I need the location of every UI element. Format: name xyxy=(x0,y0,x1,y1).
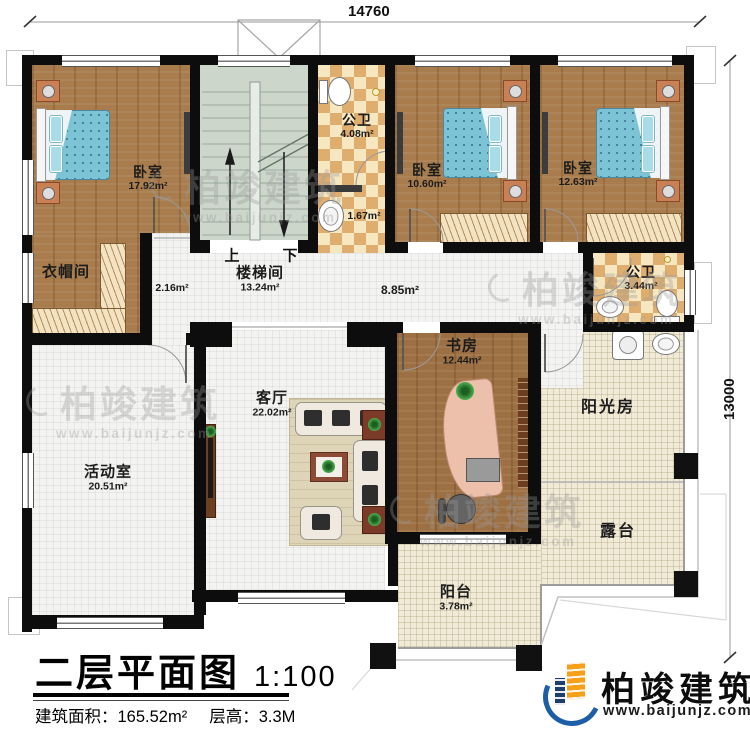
stair-down-label: 下 xyxy=(282,245,297,266)
window xyxy=(57,617,163,629)
window xyxy=(62,55,160,67)
room-area: 4.08m² xyxy=(340,128,373,140)
wardrobe xyxy=(100,243,126,309)
room-label-balcony: 阳台 3.78m² xyxy=(439,583,472,612)
bed-headboard xyxy=(36,108,46,182)
room-name: 活动室 xyxy=(84,463,132,480)
stair-up-label: 上 xyxy=(224,245,239,266)
company-website: www.baijunjz.com xyxy=(603,703,750,719)
room-name: 阳光房 xyxy=(581,399,635,417)
plant-icon xyxy=(205,426,216,437)
wardrobe xyxy=(440,213,528,243)
toilet-tank xyxy=(319,80,328,104)
plant-icon xyxy=(456,382,474,400)
wardrobe xyxy=(32,308,126,335)
logo-building-icon xyxy=(555,678,565,705)
exterior-platform xyxy=(694,262,712,324)
room-area: 2.16m² xyxy=(155,282,188,294)
logo-building-icon xyxy=(567,662,585,699)
title-underline xyxy=(33,693,289,701)
bed-pillow xyxy=(642,146,654,172)
room-area: 22.02m² xyxy=(252,407,291,419)
nightstand xyxy=(503,80,527,102)
dimension-right-label: 13000 xyxy=(721,378,738,420)
wall-segment xyxy=(190,63,200,240)
wall-segment xyxy=(190,240,210,253)
office-chair xyxy=(446,494,476,524)
nightstand xyxy=(656,180,680,202)
bed-headboard xyxy=(660,106,670,180)
room-name: 露台 xyxy=(600,523,636,541)
room-label-bath-annex: 1.67m² xyxy=(347,210,380,222)
wall-segment xyxy=(583,322,694,332)
room-name: 卧室 xyxy=(407,162,446,178)
room-name: 公卫 xyxy=(340,112,373,128)
wall-segment xyxy=(385,63,395,253)
nightstand xyxy=(503,180,527,202)
window xyxy=(22,453,34,508)
room-label-sunroom: 阳光房 xyxy=(581,399,635,417)
building-area: 建筑面积：165.52m² xyxy=(35,708,187,726)
room-label-study: 书房 12.44m² xyxy=(442,337,481,366)
terrace-pillar xyxy=(674,571,698,597)
wall-segment xyxy=(190,322,232,347)
room-name: 客厅 xyxy=(252,389,291,406)
room-label-bath-right: 公卫 3.44m² xyxy=(624,264,657,292)
room-label-bath-top: 公卫 4.08m² xyxy=(340,112,373,140)
sink-icon xyxy=(318,200,344,232)
plan-title: 二层平面图 xyxy=(35,653,240,695)
room-label-cloakroom: 衣帽间 xyxy=(42,263,90,280)
window xyxy=(22,253,34,303)
floor-corridor xyxy=(152,253,585,322)
toilet-icon xyxy=(328,77,351,106)
room-area: 12.44m² xyxy=(442,355,481,367)
room-label-corridor: 8.85m² xyxy=(381,284,419,298)
room-name: 卧室 xyxy=(558,160,597,176)
floor-drain-icon xyxy=(372,88,380,96)
wall-segment xyxy=(440,322,528,333)
window xyxy=(415,55,510,67)
terrace-pillar xyxy=(674,453,698,479)
wall-segment xyxy=(385,322,397,542)
wall-segment xyxy=(583,253,593,322)
room-label-living: 客厅 22.02m² xyxy=(252,389,291,418)
bed-pillow xyxy=(642,116,654,142)
wall-segment xyxy=(397,322,403,333)
wardrobe xyxy=(586,213,682,243)
plant-icon xyxy=(368,418,381,431)
terrace-pillar xyxy=(370,643,396,669)
bed-headboard xyxy=(507,106,517,180)
room-area: 17.92m² xyxy=(128,180,167,192)
room-name: 卧室 xyxy=(128,164,167,180)
room-name: 公卫 xyxy=(624,264,657,280)
room-area: 8.85m² xyxy=(381,284,419,298)
room-name: 书房 xyxy=(442,337,481,354)
armchair xyxy=(300,506,342,540)
computer-monitor-icon xyxy=(466,458,500,482)
room-label-bedroom1: 卧室 17.92m² xyxy=(128,164,167,192)
wall-segment xyxy=(528,322,541,544)
terrace-pillar xyxy=(516,645,542,671)
room-area: 20.51m² xyxy=(84,481,132,493)
bed-pillow xyxy=(489,146,501,172)
sink-icon xyxy=(596,296,624,318)
window xyxy=(218,55,290,67)
wall-segment xyxy=(390,242,408,253)
room-area: 1.67m² xyxy=(347,210,380,222)
window xyxy=(684,270,696,315)
toilet-icon xyxy=(656,290,678,317)
tv-console xyxy=(542,112,548,174)
wall-segment xyxy=(578,242,684,253)
wall-segment xyxy=(298,240,318,253)
nightstand xyxy=(36,182,60,204)
room-label-terrace: 露台 xyxy=(600,523,636,541)
floor-plan-canvas: 14760 13000 卧室 17.92m² 卧室 10.60m² 卧室 12.… xyxy=(0,0,750,736)
room-label-small-hall: 2.16m² xyxy=(155,282,188,294)
office-chair-back xyxy=(438,498,446,524)
window xyxy=(22,160,34,235)
room-area: 3.78m² xyxy=(439,601,472,613)
room-name: 楼梯间 xyxy=(236,264,284,281)
floor-sunroom-entry xyxy=(541,322,583,388)
wall-segment xyxy=(140,233,152,345)
room-name: 衣帽间 xyxy=(42,263,90,280)
wall-segment xyxy=(308,63,318,240)
bath-partition xyxy=(318,185,362,192)
bed-pillow xyxy=(50,146,62,172)
room-area: 12.63m² xyxy=(558,176,597,188)
plan-scale: 1:100 xyxy=(254,661,337,693)
wall-segment xyxy=(530,63,540,242)
floor-drain-icon xyxy=(664,256,671,263)
bed-pillow xyxy=(489,116,501,142)
sink-icon xyxy=(652,333,680,355)
tv-icon xyxy=(208,438,213,498)
bed-pillow xyxy=(50,116,62,142)
room-area: 10.60m² xyxy=(407,178,446,190)
bookshelf xyxy=(518,378,528,488)
dimension-top-label: 14760 xyxy=(348,3,390,20)
title-row: 二层平面图1:100 xyxy=(35,642,337,697)
room-label-activity: 活动室 20.51m² xyxy=(84,463,132,492)
room-area: 3.44m² xyxy=(624,280,657,292)
window xyxy=(558,55,672,67)
room-label-stairwell: 楼梯间 13.24m² xyxy=(236,264,284,293)
wall-segment xyxy=(443,242,543,253)
nightstand xyxy=(656,80,680,102)
room-area: 13.24m² xyxy=(236,282,284,294)
plant-icon xyxy=(368,513,381,526)
window xyxy=(238,592,345,604)
washing-machine-icon xyxy=(612,330,644,360)
room-label-bedroom2: 卧室 10.60m² xyxy=(407,162,446,190)
room-label-bedroom3: 卧室 12.63m² xyxy=(558,160,597,188)
plant-icon xyxy=(322,460,335,473)
title-info: 建筑面积：165.52m²层高：3.3M xyxy=(35,703,317,727)
wall-segment xyxy=(194,345,206,615)
wall-segment xyxy=(22,333,148,345)
wall-segment xyxy=(388,544,398,586)
nightstand xyxy=(36,80,60,102)
tv-console xyxy=(397,112,403,174)
window xyxy=(420,534,506,544)
room-name: 阳台 xyxy=(439,583,472,600)
floor-height: 层高：3.3M xyxy=(209,708,295,726)
floor-stairwell xyxy=(200,65,308,240)
